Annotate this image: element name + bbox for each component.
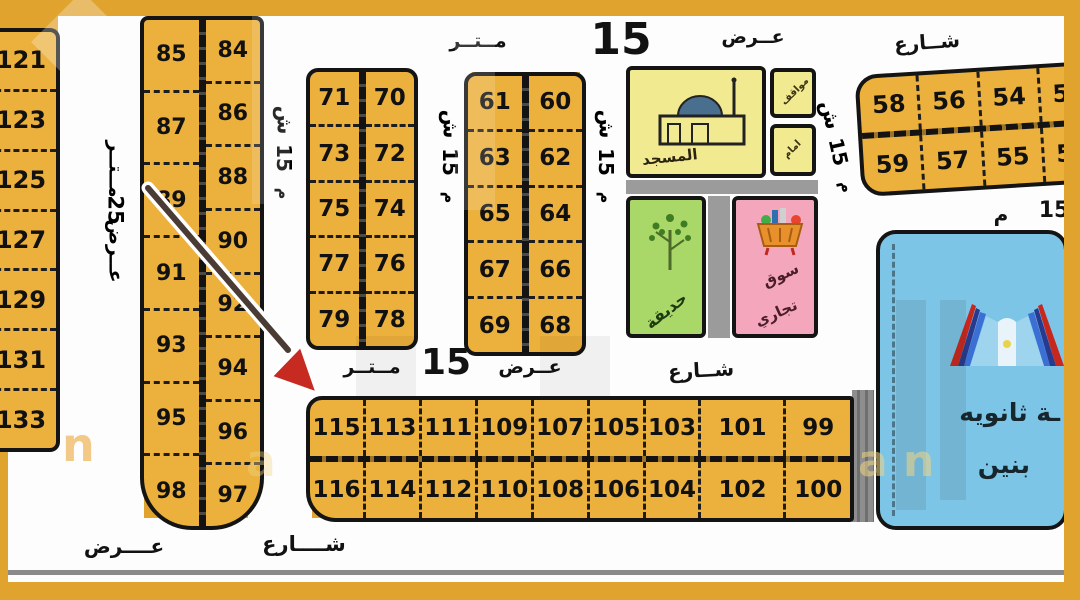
pointer-arrow: [136, 178, 336, 406]
park-label: حديقة: [641, 288, 691, 333]
park-block[interactable]: حديقة: [626, 196, 706, 338]
plot-108[interactable]: 108: [531, 462, 587, 518]
mosque-annex-top[interactable]: مواقف: [770, 68, 816, 118]
frame-top: [0, 0, 1080, 16]
mosque-block[interactable]: المسجد: [626, 66, 766, 178]
plot-64[interactable]: 64: [529, 185, 583, 241]
cross-street-label-3: ش 15 م: [588, 112, 624, 207]
plot-133[interactable]: 133: [0, 388, 56, 448]
road-strip-school-side: [852, 390, 874, 522]
plot-column-even-70s: 7072747678: [366, 72, 415, 346]
left-street-label: مــتــر 25 عــرض: [92, 158, 140, 262]
bottom-street-width-label: عــــرض: [80, 534, 168, 558]
annex-top-label: مواقف: [779, 75, 811, 107]
plot-row-even-south: 116114112110108106104102100: [310, 462, 850, 518]
plot-row-odd-south: 11511311110910710510310199: [310, 400, 850, 456]
plot-110[interactable]: 110: [475, 462, 531, 518]
plot-113[interactable]: 113: [363, 400, 419, 456]
plot-block-50s: 58565452 59575553: [854, 60, 1080, 197]
plot-74[interactable]: 74: [366, 180, 415, 235]
south-street-width-label: عــرض: [488, 356, 572, 378]
plot-55[interactable]: 55: [980, 128, 1043, 186]
plot-104[interactable]: 104: [643, 462, 699, 518]
cross-street-meem: م: [440, 192, 459, 204]
cross-street-shin: ش: [438, 110, 462, 139]
top-street-size-label: 15: [586, 14, 656, 65]
plot-57[interactable]: 57: [919, 132, 982, 190]
tree-icon: [644, 210, 696, 274]
plot-71[interactable]: 71: [310, 72, 359, 124]
plot-column-121-133: 121123125127129131133: [0, 32, 56, 448]
plot-123[interactable]: 123: [0, 89, 56, 149]
road-strip-park-market: [708, 196, 730, 338]
frame-bottom: [0, 584, 1080, 600]
plot-73[interactable]: 73: [310, 124, 359, 179]
plot-61[interactable]: 61: [468, 76, 522, 129]
plot-78[interactable]: 78: [366, 291, 415, 346]
plot-116[interactable]: 116: [310, 462, 363, 518]
plot-block-99-116: 11511311110910710510310199 1161141121101…: [306, 396, 854, 522]
plot-96[interactable]: 96: [206, 399, 261, 463]
plot-107[interactable]: 107: [531, 400, 587, 456]
plot-112[interactable]: 112: [419, 462, 475, 518]
market-block[interactable]: سوق تجاري: [732, 196, 818, 338]
plot-59[interactable]: 59: [862, 135, 922, 192]
plot-56[interactable]: 56: [916, 72, 979, 130]
school-inner-dashed-border: [892, 244, 895, 516]
plot-129[interactable]: 129: [0, 268, 56, 328]
left-street-unit: مــتــر: [105, 140, 127, 197]
plot-60[interactable]: 60: [529, 76, 583, 129]
cross-street-size: 15: [824, 136, 854, 169]
plot-69[interactable]: 69: [468, 296, 522, 352]
south-street-unit-label: مــتــر: [328, 356, 416, 378]
top-street-width-label: عــرض: [710, 26, 796, 48]
plot-103[interactable]: 103: [643, 400, 699, 456]
top-street-unit-label: مــتــر: [436, 30, 520, 52]
market-label-line1: سوق: [760, 259, 802, 291]
plot-121[interactable]: 121: [0, 32, 56, 89]
plot-87[interactable]: 87: [144, 90, 199, 163]
plot-109[interactable]: 109: [475, 400, 531, 456]
school-label-line1: ـة ثانويه: [959, 398, 1060, 427]
block-divider: [522, 76, 529, 352]
block-divider: [359, 72, 366, 346]
cross-street-meem: م: [836, 179, 857, 195]
frame-right: [1064, 0, 1080, 600]
plot-105[interactable]: 105: [587, 400, 643, 456]
cross-street-shin: ش: [815, 98, 845, 132]
plot-106[interactable]: 106: [587, 462, 643, 518]
plot-65[interactable]: 65: [468, 185, 522, 241]
plot-block-121-133: 121123125127129131133: [0, 28, 60, 452]
plot-127[interactable]: 127: [0, 209, 56, 269]
plot-99[interactable]: 99: [783, 400, 850, 456]
plot-block-60s: 6163656769 6062646668: [464, 72, 586, 356]
plot-125[interactable]: 125: [0, 149, 56, 209]
cross-street-label-2: ش 15 م: [432, 112, 468, 207]
plot-102[interactable]: 102: [698, 462, 783, 518]
road-strip-below-mosque: [626, 180, 818, 194]
plot-100[interactable]: 100: [783, 462, 850, 518]
plot-63[interactable]: 63: [468, 129, 522, 185]
plot-131[interactable]: 131: [0, 328, 56, 388]
plot-76[interactable]: 76: [366, 235, 415, 290]
cross-street-size: 15: [272, 144, 296, 172]
plot-62[interactable]: 62: [529, 129, 583, 185]
annex-bottom-label: امام: [781, 138, 803, 160]
cross-street-meem: م: [596, 192, 615, 204]
cross-street-shin: ش: [594, 110, 618, 139]
school-label-line2: بنين: [978, 450, 1030, 479]
bottom-street-name-label: شــــارع: [234, 532, 374, 556]
bottom-road-line: [8, 570, 1066, 575]
plot-67[interactable]: 67: [468, 240, 522, 296]
plot-111[interactable]: 111: [419, 400, 475, 456]
plot-98[interactable]: 98: [144, 453, 199, 526]
plot-85[interactable]: 85: [144, 20, 199, 90]
school-books-icon: [946, 296, 1068, 378]
plot-68[interactable]: 68: [529, 296, 583, 352]
plot-70[interactable]: 70: [366, 72, 415, 124]
cross-street-shin: ش: [272, 106, 296, 135]
plot-66[interactable]: 66: [529, 240, 583, 296]
mosque-annex-bottom[interactable]: امام: [770, 124, 816, 176]
plot-84[interactable]: 84: [206, 20, 261, 81]
plot-97[interactable]: 97: [206, 462, 261, 526]
plot-map: { "streets": { "top": { "street": "شــار…: [0, 0, 1080, 600]
plot-115[interactable]: 115: [310, 400, 363, 456]
plot-86[interactable]: 86: [206, 81, 261, 145]
cross-street-size: 15: [438, 148, 462, 176]
plot-column-even-60s: 6062646668: [529, 76, 583, 352]
plot-58[interactable]: 58: [859, 76, 919, 133]
right-edge-meem-label: م: [986, 202, 1016, 226]
street-area-mid-vertical-2: [412, 62, 472, 354]
school-block[interactable]: ـة ثانويه بنين: [876, 230, 1068, 530]
plot-114[interactable]: 114: [363, 462, 419, 518]
market-basket-icon: [754, 208, 806, 256]
plot-101[interactable]: 101: [698, 400, 783, 456]
left-street-width: عــرض: [105, 219, 127, 282]
plot-54[interactable]: 54: [976, 68, 1039, 126]
market-label-line2: تجاري: [752, 296, 800, 331]
plot-72[interactable]: 72: [366, 124, 415, 179]
plot-column-odd-60s: 6163656769: [468, 76, 522, 352]
mosque-icon: [648, 76, 756, 148]
cross-street-size: 15: [594, 148, 618, 176]
mosque-label: المسجد: [641, 145, 698, 169]
